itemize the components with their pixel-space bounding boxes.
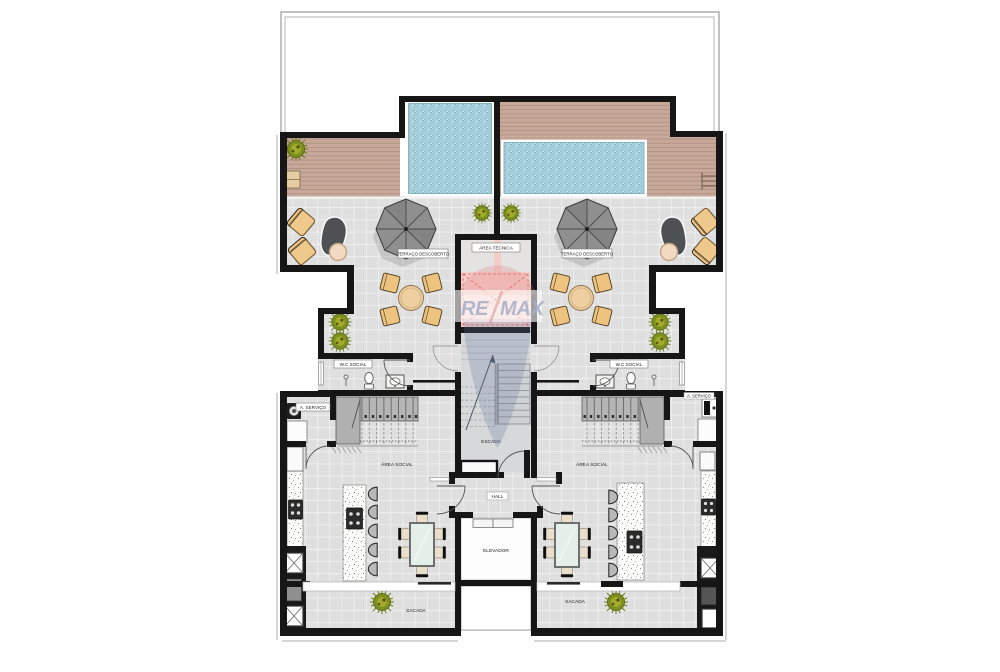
svg-text:TERRAÇO DESCOBERTO: TERRAÇO DESCOBERTO [397,252,450,257]
svg-text:ÁREA SOCIAL: ÁREA SOCIAL [576,461,608,468]
svg-text:SACADA: SACADA [406,608,427,614]
svg-text:ELEVADOR: ELEVADOR [483,548,509,554]
svg-text:MAX: MAX [500,298,546,320]
svg-text:TERRAÇO DESCOBERTO: TERRAÇO DESCOBERTO [561,252,614,257]
svg-text:ÁREA TÉCNICA: ÁREA TÉCNICA [479,245,514,251]
svg-text:ÁREA SOCIAL: ÁREA SOCIAL [381,461,413,468]
svg-text:A. SERVIÇO: A. SERVIÇO [300,405,327,410]
svg-text:HALL: HALL [492,494,504,500]
svg-text:SACADA: SACADA [565,599,586,605]
svg-text:W.C SOCIAL: W.C SOCIAL [340,362,367,367]
svg-text:W.C SOCIAL: W.C SOCIAL [616,362,643,367]
svg-text:RE: RE [461,298,489,320]
svg-text:A. SERVIÇO: A. SERVIÇO [687,394,712,399]
